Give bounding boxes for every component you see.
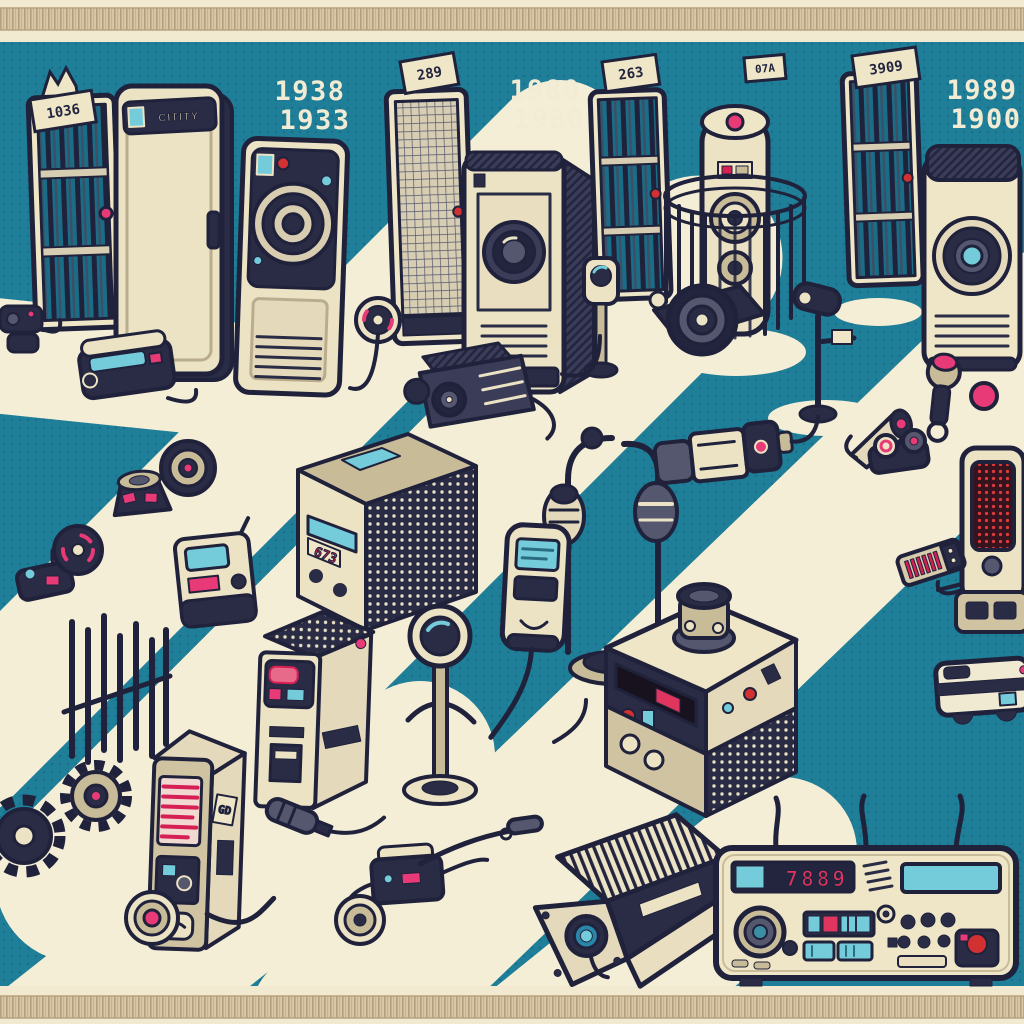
red-led-screen (972, 462, 1014, 550)
kiosk-pink-key (269, 688, 281, 699)
year-1989: 1989 (946, 75, 1017, 106)
intercom-speaker-dial (252, 182, 335, 265)
intercom-door (235, 138, 348, 395)
camera-door-chip (474, 174, 485, 187)
console-button-row-1 (804, 912, 874, 936)
caged-tower-tag: 07A (744, 55, 786, 82)
speaker-tower-lens (934, 218, 1010, 294)
walkie-talkie-a (77, 329, 176, 399)
gate-right-tag: 3909 (852, 47, 920, 88)
radio-box: 673 (298, 434, 476, 630)
projector-lens (566, 915, 607, 956)
console-cable-1 (776, 798, 779, 848)
year-1938: 1938 (274, 76, 345, 107)
kiosk-pink-display (269, 666, 298, 683)
intercom-cyan-light (321, 176, 331, 186)
intercom-badge-icon (257, 154, 274, 175)
frame-band-top (0, 8, 1024, 30)
radio-knob-2 (332, 582, 348, 598)
illustration-stage: 1036 CITITY (0, 0, 1024, 1024)
console-button-row-2 (804, 942, 872, 960)
console-display-digits: 7889 (785, 867, 848, 891)
year-1933: 1933 (279, 105, 350, 136)
dial-disc (54, 526, 102, 574)
gate-middle-tag: 263 (602, 54, 660, 91)
door-handle (208, 212, 219, 248)
caged-tower-tag-text: 07A (755, 61, 776, 76)
illustration-canvas: 1036 CITITY (0, 0, 1024, 1024)
radio-knob-1 (308, 568, 324, 584)
intercom-red-light (277, 157, 289, 169)
mesh-door (386, 89, 475, 344)
frame-band-bottom (0, 996, 1024, 1018)
ticket-kiosk (255, 610, 374, 810)
barred-gate-door-right (842, 71, 923, 285)
door-badge-icon (128, 107, 144, 127)
pink-disc (971, 383, 997, 409)
console-main-knob (736, 908, 784, 956)
fridge-door-label: CITITY (158, 110, 199, 124)
tower-top-button (727, 114, 743, 130)
console-power-switch (956, 930, 998, 966)
year-1900: 1900 (950, 104, 1021, 135)
door-camera-lens (484, 222, 544, 282)
lens-disc (161, 441, 215, 495)
payphone-side-tag: GD (217, 803, 233, 818)
kiosk-cyan-key (287, 689, 304, 701)
year-1980-a: 1980 (509, 75, 580, 106)
kiosk-pink-light (356, 638, 366, 648)
flat-disc (336, 896, 384, 944)
year-1980-b: 1980 (513, 104, 584, 135)
ring-disc (126, 892, 178, 944)
console-cyan-screen (902, 864, 1000, 892)
camera-turret (674, 584, 734, 652)
microphone-head-right (635, 483, 677, 541)
